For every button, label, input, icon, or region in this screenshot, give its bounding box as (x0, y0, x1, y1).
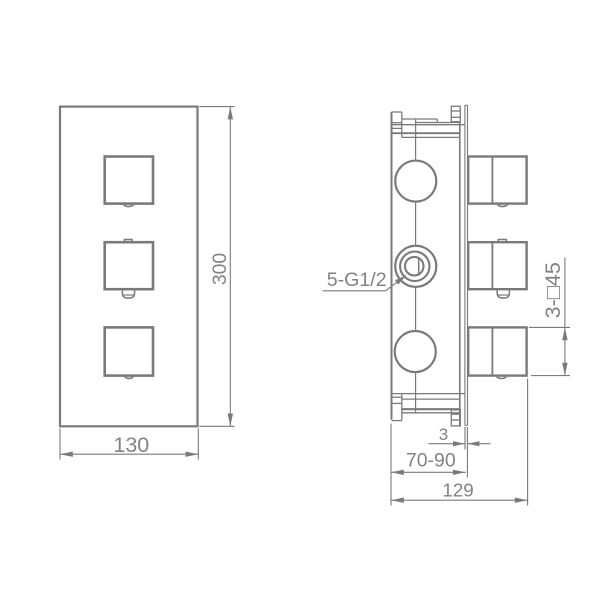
svg-text:5-G1/2: 5-G1/2 (327, 269, 387, 291)
svg-text:70-90: 70-90 (406, 449, 456, 471)
svg-text:130: 130 (113, 433, 149, 457)
svg-text:129: 129 (442, 479, 473, 500)
svg-text:3-□45: 3-□45 (540, 262, 565, 318)
svg-text:3: 3 (439, 425, 448, 444)
svg-text:300: 300 (209, 253, 231, 286)
